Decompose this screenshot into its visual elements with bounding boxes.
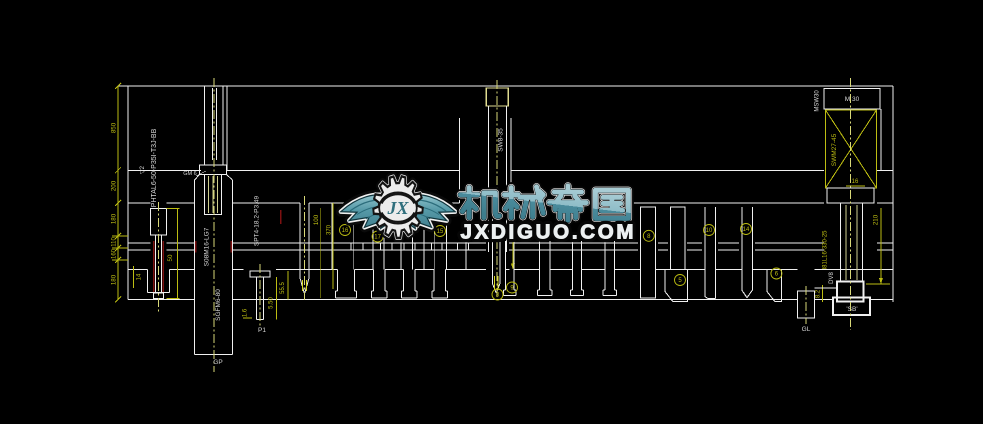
svg-text:P1: P1: [258, 327, 266, 334]
svg-text:55.5: 55.5: [280, 282, 286, 294]
svg-text:SW8-35: SW8-35: [498, 128, 505, 152]
svg-text:110: 110: [112, 237, 118, 247]
svg-text:16: 16: [342, 228, 349, 234]
svg-text:GM 6: GM 6: [183, 171, 196, 177]
svg-text:180: 180: [111, 213, 118, 224]
svg-text:180: 180: [111, 274, 118, 285]
svg-text:JXDIGUO.COM: JXDIGUO.COM: [461, 221, 634, 244]
svg-text:'SB': 'SB': [846, 306, 857, 313]
svg-text:100: 100: [313, 214, 320, 225]
svg-text:1.6: 1.6: [243, 308, 249, 317]
svg-text:PHTAL6-50-P35I-T3J-BB: PHTAL6-50-P35I-T3J-BB: [151, 128, 158, 207]
svg-text:SGFM6-80: SGFM6-80: [215, 289, 222, 321]
svg-text:I81L16-330-25: I81L16-330-25: [823, 230, 829, 270]
svg-text:15: 15: [437, 229, 444, 235]
svg-text:10: 10: [706, 228, 713, 234]
svg-text:50: 50: [167, 254, 174, 261]
svg-text:S08M16-LG7: S08M16-LG7: [204, 227, 211, 266]
svg-text:SWM27-45: SWM27-45: [831, 133, 838, 166]
svg-text:370: 370: [327, 224, 333, 235]
svg-text:850: 850: [111, 122, 118, 133]
svg-text:MSW30: MSW30: [815, 90, 821, 112]
svg-text:14: 14: [137, 273, 143, 280]
svg-text:17: 17: [374, 235, 381, 241]
svg-text:14: 14: [743, 227, 750, 233]
svg-text:16: 16: [852, 179, 859, 185]
svg-text:210: 210: [873, 214, 880, 225]
svg-text:JX: JX: [386, 198, 409, 218]
svg-text:GP: GP: [213, 359, 222, 366]
svg-text:8.2: 8.2: [816, 289, 822, 298]
svg-text:200: 200: [111, 180, 118, 191]
svg-text:GL: GL: [802, 326, 811, 333]
svg-text:DV8: DV8: [829, 272, 835, 284]
svg-text:SPT4-18.2-P3.49: SPT4-18.2-P3.49: [254, 196, 261, 247]
svg-text:M 30: M 30: [845, 96, 860, 103]
svg-text:▽2: ▽2: [140, 165, 146, 174]
svg-text:160: 160: [112, 248, 118, 259]
svg-text:5.50: 5.50: [269, 297, 275, 309]
